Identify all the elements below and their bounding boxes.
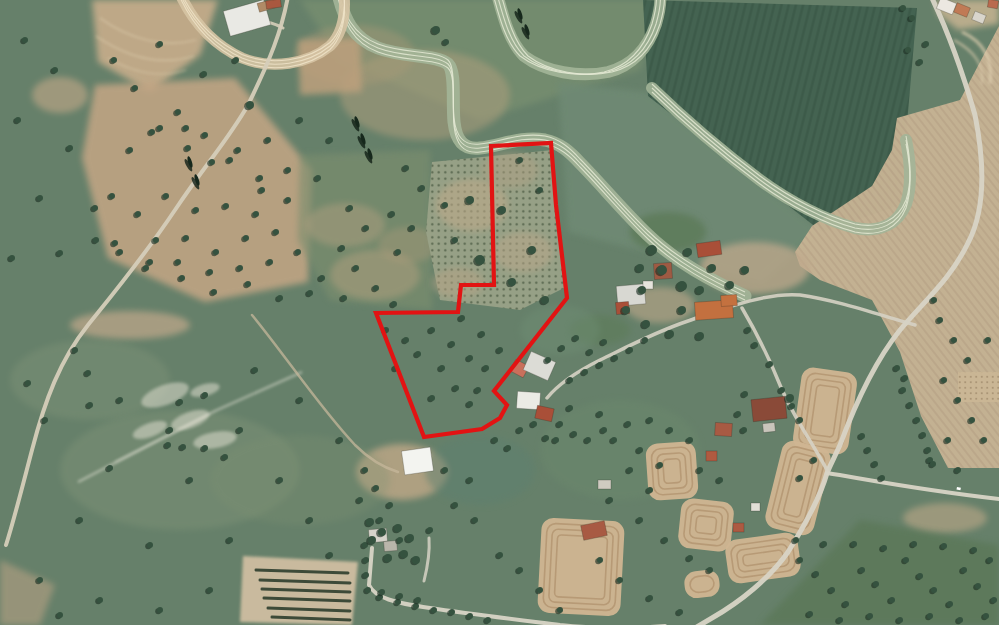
tree <box>87 402 93 408</box>
tree <box>339 245 345 251</box>
tree <box>412 556 420 564</box>
tree <box>15 117 21 123</box>
tree <box>657 462 663 468</box>
building-roof <box>401 447 433 475</box>
tree <box>930 461 936 467</box>
tree <box>667 427 673 433</box>
tree <box>767 361 773 367</box>
tree <box>557 607 563 613</box>
tree <box>752 342 758 348</box>
tree <box>319 275 325 281</box>
tree <box>666 330 674 338</box>
tree <box>741 427 747 433</box>
tree <box>696 332 704 340</box>
tree <box>637 517 643 523</box>
tree <box>742 391 748 397</box>
tree <box>793 537 799 543</box>
field-region <box>958 372 999 402</box>
tree <box>227 157 233 163</box>
tree <box>379 589 385 595</box>
tree <box>657 265 667 275</box>
tree <box>167 427 173 433</box>
tree <box>900 5 906 11</box>
tree <box>153 237 159 243</box>
field-region <box>210 435 390 525</box>
tree <box>708 264 716 272</box>
tree <box>77 517 83 523</box>
tree <box>285 167 291 173</box>
tree <box>202 445 208 451</box>
tree <box>811 457 817 463</box>
tree <box>397 593 403 599</box>
tree <box>843 601 849 607</box>
tree <box>209 159 215 165</box>
tree <box>497 552 503 558</box>
tree <box>373 485 379 491</box>
field-region <box>305 203 385 247</box>
tree <box>931 587 937 593</box>
field-region <box>32 77 88 113</box>
tree <box>327 137 333 143</box>
tree <box>377 517 383 523</box>
tree <box>638 286 646 294</box>
tree <box>147 542 153 548</box>
tree <box>627 347 633 353</box>
tree <box>983 613 989 619</box>
tree <box>485 617 491 623</box>
tree <box>177 399 183 405</box>
tree <box>453 385 459 391</box>
tree <box>981 437 987 443</box>
tree <box>157 125 163 131</box>
tree <box>582 369 588 375</box>
building-roof <box>763 422 776 432</box>
plowed-plot <box>537 517 625 616</box>
tree <box>93 237 99 243</box>
tree <box>357 497 363 503</box>
tree <box>175 109 181 115</box>
tree <box>472 517 478 523</box>
tree <box>327 552 333 558</box>
tree <box>955 467 961 473</box>
tree <box>567 377 573 383</box>
tree <box>273 229 279 235</box>
building-roof <box>733 523 744 532</box>
tree <box>163 193 169 199</box>
tree <box>117 249 123 255</box>
field-region <box>493 232 553 272</box>
tree <box>147 259 153 265</box>
tree <box>902 375 908 381</box>
tree <box>726 281 734 289</box>
tree <box>894 365 900 371</box>
tree <box>601 427 607 433</box>
tree <box>201 71 207 77</box>
tree <box>207 269 213 275</box>
tree <box>517 157 523 163</box>
tree <box>909 15 915 21</box>
tree <box>165 442 171 448</box>
tree <box>573 335 579 341</box>
tree <box>897 617 903 623</box>
tree <box>211 289 217 295</box>
tree <box>107 465 113 471</box>
tree <box>517 567 523 573</box>
plowed-plot <box>791 366 858 456</box>
tree <box>409 225 415 231</box>
tree <box>587 349 593 355</box>
tree <box>180 444 186 450</box>
tree <box>406 534 414 542</box>
tree <box>647 417 653 423</box>
tree <box>85 370 91 376</box>
tree <box>467 477 473 483</box>
field-region <box>903 503 987 533</box>
tree <box>400 550 408 558</box>
tree <box>920 432 926 438</box>
tree <box>439 365 445 371</box>
tree <box>707 567 713 573</box>
tree <box>678 306 686 314</box>
tree <box>365 587 371 593</box>
tree <box>927 613 933 619</box>
tree <box>625 421 631 427</box>
tree <box>363 225 369 231</box>
tree <box>307 517 313 523</box>
tree <box>813 571 819 577</box>
tree <box>307 290 313 296</box>
tree <box>642 320 650 328</box>
tree <box>193 207 199 213</box>
tree <box>243 235 249 241</box>
tree <box>945 437 951 443</box>
tree <box>395 249 401 255</box>
tree <box>22 37 28 43</box>
tree <box>745 327 751 333</box>
tree <box>821 541 827 547</box>
tree <box>917 573 923 579</box>
tree <box>185 145 191 151</box>
tree <box>475 387 481 393</box>
tree <box>467 401 473 407</box>
tree <box>397 537 403 543</box>
building-roof <box>721 294 738 306</box>
tree <box>467 355 473 361</box>
tree <box>391 301 397 307</box>
tree <box>227 537 233 543</box>
building-roof <box>384 540 398 551</box>
tree <box>497 347 503 353</box>
tree <box>975 583 981 589</box>
tree <box>127 147 133 153</box>
satellite-map[interactable] <box>0 0 999 625</box>
tree <box>717 477 723 483</box>
tree <box>363 572 369 578</box>
tree <box>951 337 957 343</box>
tree <box>969 417 975 423</box>
tree <box>52 67 58 73</box>
tree <box>797 475 803 481</box>
tree <box>829 587 835 593</box>
tree <box>315 175 321 181</box>
tree <box>285 197 291 203</box>
tree <box>183 235 189 241</box>
tree <box>467 613 473 619</box>
tree <box>259 187 265 193</box>
tree <box>394 524 402 532</box>
tree <box>25 380 31 386</box>
tree <box>637 447 643 453</box>
tree <box>237 427 243 433</box>
tree <box>207 587 213 593</box>
tree <box>97 597 103 603</box>
tree <box>223 203 229 209</box>
tree <box>475 255 485 265</box>
tree <box>57 250 63 256</box>
tree <box>971 547 977 553</box>
tree <box>429 395 435 401</box>
tree <box>253 211 259 217</box>
tree <box>222 454 228 460</box>
tree <box>72 347 78 353</box>
tree <box>917 59 923 65</box>
tree <box>571 431 577 437</box>
tree <box>297 397 303 403</box>
tree <box>37 577 43 583</box>
tree <box>111 57 117 63</box>
tree <box>37 195 43 201</box>
tree <box>384 554 392 562</box>
tree <box>865 447 871 453</box>
tree <box>545 357 551 363</box>
tree <box>183 125 189 131</box>
tree <box>597 557 603 563</box>
tree <box>889 597 895 603</box>
map-viewport <box>0 0 999 625</box>
tree <box>387 502 393 508</box>
tree <box>252 367 258 373</box>
tree <box>245 281 251 287</box>
tree <box>341 295 347 301</box>
tree <box>567 405 573 411</box>
tree <box>373 285 379 291</box>
tree <box>187 477 193 483</box>
tree <box>498 206 506 214</box>
tree <box>937 317 943 323</box>
tree <box>442 467 448 473</box>
tree <box>277 295 283 301</box>
tree <box>92 205 98 211</box>
tree <box>687 555 693 561</box>
tree <box>541 296 549 304</box>
tree <box>987 557 993 563</box>
tree <box>337 437 343 443</box>
tree <box>900 387 906 393</box>
tree <box>277 477 283 483</box>
tree <box>202 392 208 398</box>
tree <box>505 445 511 451</box>
tree <box>907 402 913 408</box>
tree <box>557 421 563 427</box>
tree <box>403 165 409 171</box>
tree <box>696 286 704 294</box>
tree <box>872 461 878 467</box>
tree <box>879 475 885 481</box>
tree <box>585 437 591 443</box>
tree <box>642 337 648 343</box>
building-roof <box>706 451 717 461</box>
tree <box>157 41 163 47</box>
tree <box>389 211 395 217</box>
tree <box>531 421 537 427</box>
tree <box>257 175 263 181</box>
tree <box>647 245 657 255</box>
tree <box>202 132 208 138</box>
tree <box>786 394 794 402</box>
tree <box>149 129 155 135</box>
tree <box>353 265 359 271</box>
tree <box>807 611 813 617</box>
tree <box>647 595 653 601</box>
tree <box>957 617 963 623</box>
tree <box>955 397 961 403</box>
tree <box>135 211 141 217</box>
tree <box>297 117 303 123</box>
tree <box>914 417 920 423</box>
tree <box>479 331 485 337</box>
tree <box>851 541 857 547</box>
tree <box>492 437 498 443</box>
tree <box>213 249 219 255</box>
tree <box>647 487 653 493</box>
tree <box>132 85 138 91</box>
tree <box>607 497 613 503</box>
building-roof <box>598 480 611 489</box>
tree <box>378 528 386 536</box>
tree <box>867 613 873 619</box>
tree <box>265 137 271 143</box>
tree <box>925 447 931 453</box>
tree <box>246 101 254 109</box>
tree <box>597 411 603 417</box>
tree <box>601 339 607 345</box>
tree <box>452 502 458 508</box>
tree <box>9 255 15 261</box>
plowed-plot <box>645 441 699 501</box>
tree <box>735 411 741 417</box>
tree <box>517 427 523 433</box>
tree <box>612 355 618 361</box>
tree <box>363 557 369 563</box>
tree <box>985 337 991 343</box>
tree <box>617 577 623 583</box>
tree <box>117 397 123 403</box>
tree <box>881 545 887 551</box>
tree <box>67 145 73 151</box>
tree <box>415 351 421 357</box>
tree <box>905 47 911 53</box>
tree <box>366 518 374 526</box>
tree <box>543 435 549 441</box>
tree <box>859 567 865 573</box>
tree <box>143 265 149 271</box>
tree <box>903 557 909 563</box>
tree <box>157 607 163 613</box>
tree <box>797 417 803 423</box>
tree <box>442 202 448 208</box>
tree <box>677 281 687 291</box>
tree <box>991 597 997 603</box>
tree <box>611 437 617 443</box>
building-roof <box>715 422 733 436</box>
tree <box>452 237 458 243</box>
tree <box>923 41 929 47</box>
tree <box>741 266 749 274</box>
tree <box>636 264 644 272</box>
tree <box>697 467 703 473</box>
tree <box>295 249 301 255</box>
tree <box>965 357 971 363</box>
tree <box>175 259 181 265</box>
tree <box>537 187 543 193</box>
building-roof <box>751 396 787 421</box>
tree <box>559 345 565 351</box>
tree <box>873 581 879 587</box>
tree <box>415 597 421 603</box>
tree <box>42 417 48 423</box>
tree <box>528 246 536 254</box>
tree <box>797 557 803 563</box>
tree <box>362 467 368 473</box>
tree <box>419 185 425 191</box>
tree <box>508 278 516 286</box>
tree <box>662 537 668 543</box>
tree <box>235 147 241 153</box>
tree <box>431 607 437 613</box>
plowed-plot <box>677 497 735 552</box>
tree <box>677 609 683 615</box>
tree <box>684 248 692 256</box>
tree <box>941 377 947 383</box>
building-roof <box>751 503 760 511</box>
tree <box>483 365 489 371</box>
building-roof <box>696 240 722 257</box>
tree <box>267 259 273 265</box>
tree <box>466 196 474 204</box>
tree <box>961 567 967 573</box>
building-roof <box>987 0 998 9</box>
tree <box>109 193 115 199</box>
tree <box>179 275 185 281</box>
tree <box>941 543 947 549</box>
tree <box>947 601 953 607</box>
tree <box>837 617 843 623</box>
tree <box>429 327 435 333</box>
tree <box>779 387 785 393</box>
tree <box>443 39 449 45</box>
tree <box>459 315 465 321</box>
tree <box>449 609 455 615</box>
tree <box>347 205 353 211</box>
tree <box>622 306 630 314</box>
tree <box>57 612 63 618</box>
tree <box>627 467 633 473</box>
tree <box>537 587 543 593</box>
tree <box>403 337 409 343</box>
tree <box>859 433 865 439</box>
tree <box>553 437 559 443</box>
tree <box>789 403 795 409</box>
